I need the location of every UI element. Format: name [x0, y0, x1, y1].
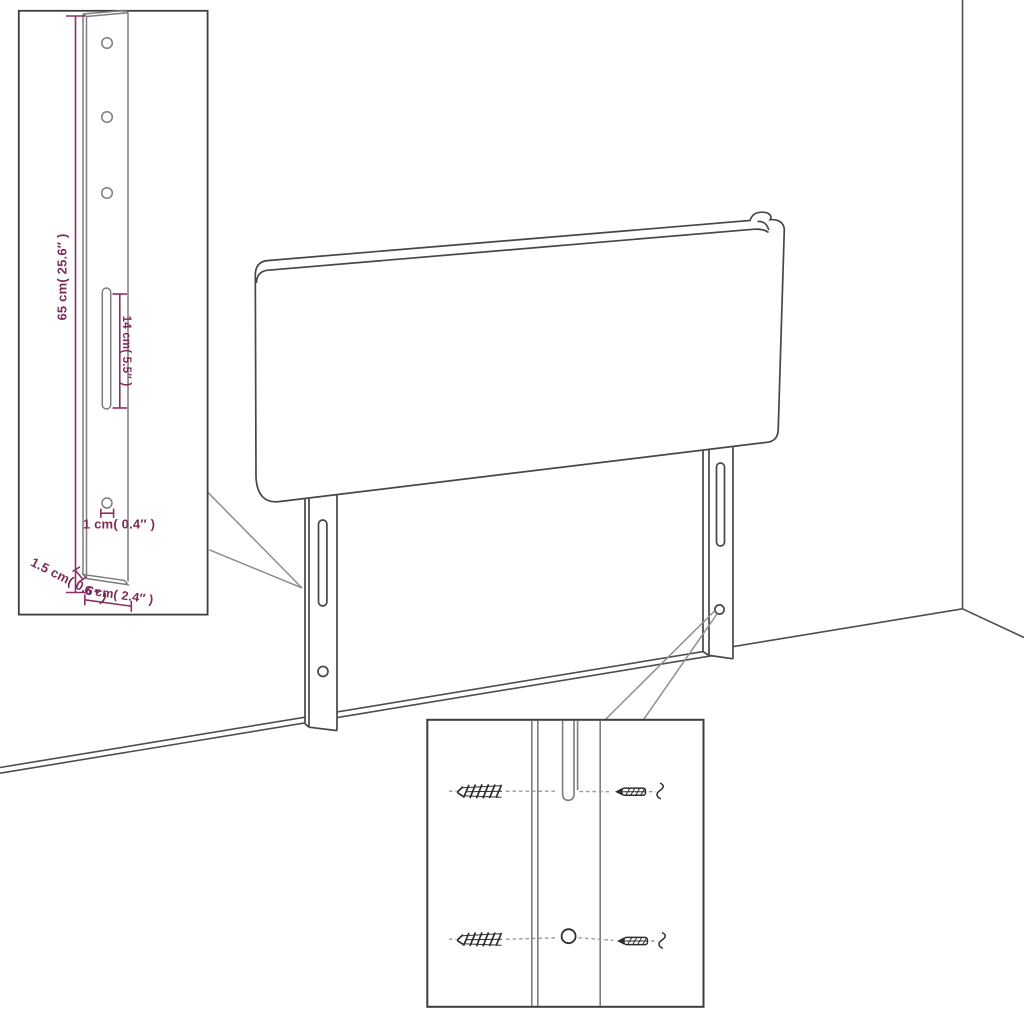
callout-right-lower [644, 614, 718, 720]
floor-line-right [963, 609, 1024, 638]
dimension-label-hole-size: 1 cm( 0.4″ ) [83, 517, 155, 532]
callout-left-upper [208, 492, 302, 588]
callout-lines [208, 492, 718, 719]
dimension-label-leg-height: 65 cm( 25.6″ ) [55, 233, 70, 320]
right-leg [703, 432, 733, 659]
left-leg [305, 482, 337, 731]
inset-mounting-box [427, 720, 703, 1007]
headboard-dimension-diagram: 65 cm( 25.6″ ) 14 cm( 5.5″ ) 1 cm( 0.4″ … [0, 0, 1024, 1024]
callout-left-lower [209, 550, 302, 588]
dimension-label-slot-length: 14 cm( 5.5″ ) [120, 316, 132, 387]
diagram-canvas [0, 0, 1024, 1024]
inset-mounting-detail [427, 720, 703, 1007]
